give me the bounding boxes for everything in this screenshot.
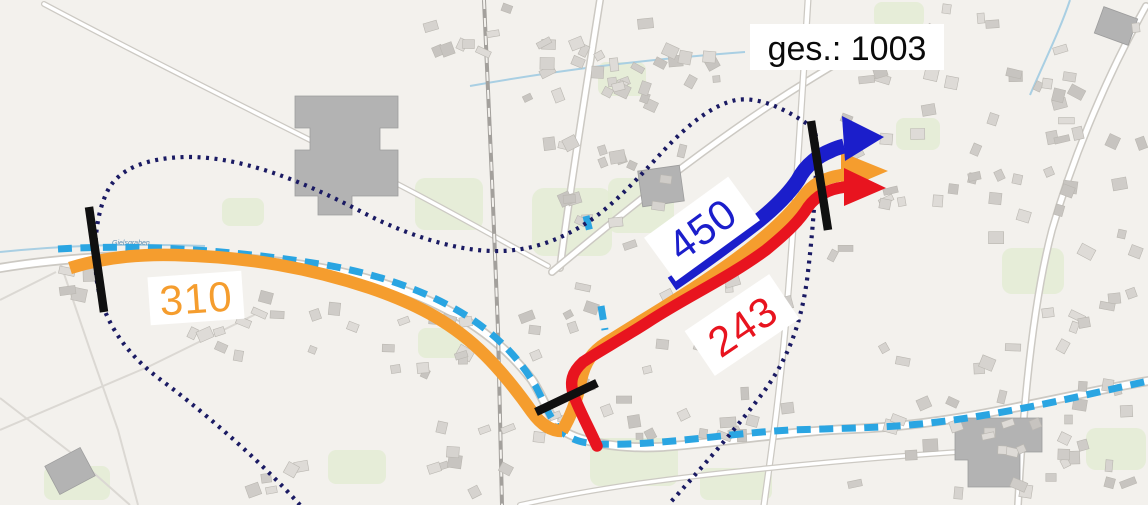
label-total: ges.: 1003 (750, 24, 944, 70)
map-canvas: Gielsgraben ges.: 1003 450 310 (0, 0, 1148, 505)
label-total-text: ges.: 1003 (768, 30, 927, 68)
label-flow-orange-text: 310 (158, 273, 234, 325)
large-building-center (638, 165, 685, 206)
label-flow-orange: 310 (147, 271, 244, 325)
traffic-flow-map: Gielsgraben ges.: 1003 450 310 (0, 0, 1148, 505)
